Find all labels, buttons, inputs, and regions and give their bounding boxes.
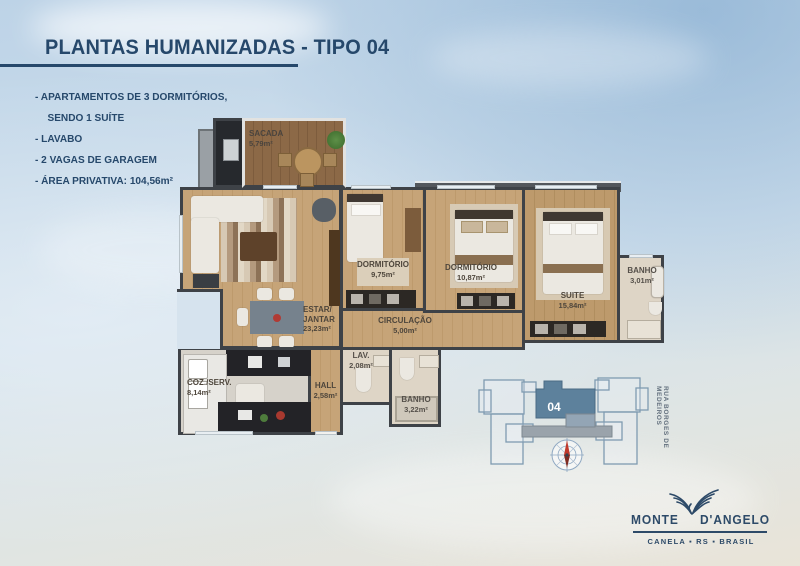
logo-location: CANELA ▪ RS ▪ BRASIL — [645, 537, 757, 546]
stove — [248, 356, 262, 368]
kitchen-counter — [226, 350, 311, 376]
dining-table — [250, 301, 304, 334]
wardrobe-door — [387, 294, 399, 304]
room-label-sacada: SACADA 5,79m² — [249, 129, 283, 148]
chair — [323, 153, 337, 167]
logo-name-right: D'ANGELO — [700, 512, 770, 527]
logo-divider — [633, 531, 767, 533]
headboard — [347, 194, 383, 202]
left-wing-outline — [479, 380, 536, 464]
toilet — [649, 302, 662, 315]
wardrobe-door — [479, 296, 491, 306]
wardrobe-door — [554, 324, 567, 334]
headboard — [455, 210, 513, 219]
room-label-cozinha: COZ./SERV. 8,14m² — [187, 378, 249, 397]
building-notch — [177, 289, 223, 349]
sink-vanity — [627, 320, 661, 339]
kitchen-sink — [278, 357, 290, 367]
room-dormitorio-2 — [423, 187, 525, 313]
chair — [278, 153, 292, 167]
wardrobe-door — [497, 296, 509, 306]
wardrobe-door — [535, 324, 548, 334]
room-label-banho-suite: BANHO 3,01m² — [623, 266, 661, 285]
chair — [237, 308, 248, 326]
room-label-circulacao: CIRCULAÇÃO 5,00m² — [360, 316, 450, 335]
room-label-dormitorio-1: DORMITÓRIO 9,75m² — [347, 260, 419, 279]
coffee-table — [240, 232, 277, 261]
page-title: PLANTAS HUMANIZADAS - TIPO 04 — [45, 36, 389, 60]
pillow — [575, 223, 598, 235]
plant-icon — [260, 414, 268, 422]
hatch-panel — [223, 139, 239, 161]
wardrobe — [530, 321, 606, 337]
compass-icon — [550, 438, 584, 472]
utility-shaft — [213, 118, 245, 188]
unit-number-label: 04 — [547, 400, 561, 414]
room-label-hall: HALL 2,58m² — [308, 381, 343, 400]
desk — [405, 208, 421, 252]
sink — [419, 355, 439, 368]
feature-item: - APARTAMENTOS DE 3 DORMITÓRIOS, — [35, 87, 227, 108]
room-banho-social — [389, 347, 441, 427]
chair — [300, 173, 314, 187]
room-label-banho-social: BANHO 3,22m² — [395, 395, 437, 414]
window — [437, 185, 495, 189]
bed-runner — [543, 264, 603, 273]
headboard — [543, 212, 603, 221]
room-label-suite: SUITE 15,84m² — [535, 291, 610, 310]
pillow — [549, 223, 572, 235]
wardrobe-door — [461, 296, 473, 306]
kitchen-counter — [218, 402, 311, 432]
room-label-dormitorio-2: DORMITÓRIO 10,87m² — [431, 263, 511, 282]
window — [179, 215, 183, 273]
wardrobe — [346, 290, 416, 308]
chair — [257, 288, 272, 300]
room-label-lavabo: LAV. 2,08m² — [343, 351, 379, 370]
wardrobe-door — [369, 294, 381, 304]
cloud — [430, 28, 710, 88]
bed — [543, 212, 603, 294]
plant-icon — [327, 131, 345, 149]
pillow — [351, 204, 381, 216]
room-dormitorio-1 — [340, 187, 426, 311]
right-wing-outline — [595, 378, 648, 464]
unit-step-block — [566, 414, 595, 427]
pillow — [486, 221, 508, 233]
pillow — [461, 221, 483, 233]
marketing-page: PLANTAS HUMANIZADAS - TIPO 04 - APARTAME… — [0, 0, 800, 566]
kitchen-sink — [238, 410, 252, 420]
entry-door-opening — [315, 431, 337, 435]
balcony-door — [263, 185, 297, 189]
building-site-plan: 04 — [478, 370, 678, 482]
pot-icon — [276, 411, 285, 420]
room-label-estar: ESTAR/ JANTAR 23,23m² — [303, 305, 335, 333]
flower-centerpiece-icon — [273, 314, 281, 322]
window — [351, 185, 391, 189]
side-table — [193, 274, 219, 288]
wardrobe — [457, 293, 515, 309]
chair — [279, 288, 294, 300]
wardrobe-door — [351, 294, 363, 304]
deck-slab — [522, 426, 612, 437]
window — [629, 254, 653, 258]
window — [195, 431, 253, 435]
title-underline — [0, 64, 298, 67]
washer — [188, 359, 208, 379]
armchair — [312, 198, 336, 222]
wardrobe-door — [573, 324, 586, 334]
toilet — [356, 368, 371, 392]
toilet — [400, 358, 414, 380]
room-suite — [522, 187, 620, 343]
bed — [347, 194, 383, 262]
unit-04-block — [536, 381, 595, 418]
window — [535, 185, 597, 189]
sofa — [191, 218, 219, 273]
